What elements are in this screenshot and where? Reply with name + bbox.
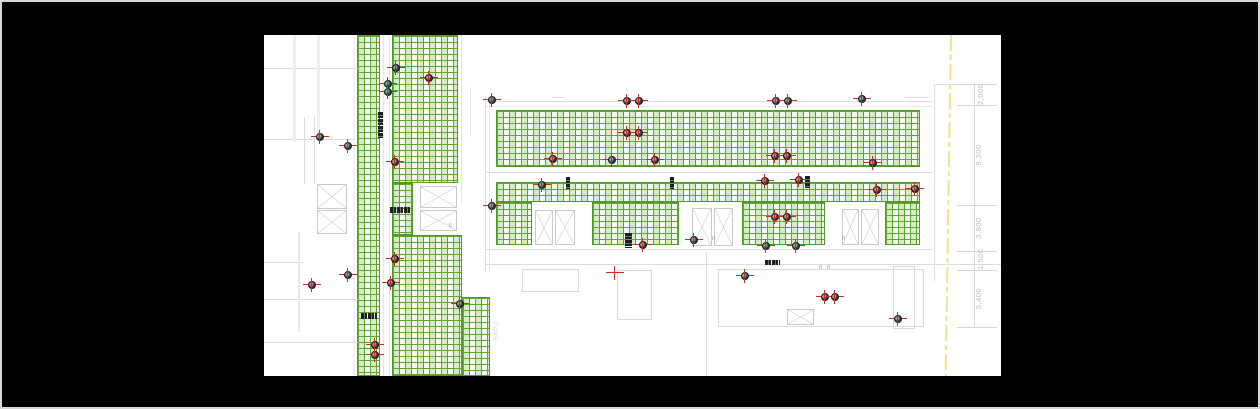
planting-grid-area xyxy=(885,202,920,245)
marker-dot xyxy=(911,185,919,193)
sprinkler-marker xyxy=(630,92,648,110)
marker-dot xyxy=(783,213,791,221)
wall-line xyxy=(485,172,932,173)
annotation-glyph: c xyxy=(449,223,452,229)
marker-dot xyxy=(391,255,399,263)
skylight-xbox xyxy=(787,309,814,325)
sprinkler-marker xyxy=(864,154,882,172)
sprinkler-marker xyxy=(606,264,624,282)
wall-line xyxy=(934,84,935,281)
dimension-label: 1,500 xyxy=(976,251,985,270)
building-outline xyxy=(522,269,579,292)
marker-dot xyxy=(538,181,546,189)
marker-dot xyxy=(795,176,803,184)
sprinkler-marker xyxy=(483,91,501,109)
wall-line xyxy=(461,35,462,202)
marker-dot xyxy=(344,271,352,279)
planting-grid-area xyxy=(357,35,380,376)
sprinkler-marker xyxy=(787,237,805,255)
sprinkler-marker xyxy=(339,266,357,284)
text-tag xyxy=(625,233,632,248)
wall-line xyxy=(706,252,707,376)
sprinkler-marker xyxy=(634,236,652,254)
sprinkler-marker xyxy=(603,151,621,169)
sprinkler-marker xyxy=(826,288,844,306)
skylight-xbox xyxy=(317,184,347,209)
annotation-glyph: n xyxy=(827,265,830,271)
sprinkler-marker xyxy=(379,83,397,101)
marker-dot xyxy=(549,155,557,163)
marker-dot xyxy=(608,156,616,164)
sprinkler-marker xyxy=(756,172,774,190)
wall-line xyxy=(298,232,300,332)
drawing-canvas[interactable]: cnnnn2,0009,3003,8001,5005,400EXP.J xyxy=(264,35,1001,376)
skylight-xbox xyxy=(535,210,553,245)
sprinkler-marker xyxy=(778,147,796,165)
wall-line xyxy=(293,35,296,142)
marker-dot xyxy=(392,64,400,72)
sprinkler-marker xyxy=(533,176,551,194)
marker-dot xyxy=(869,159,877,167)
wall-line xyxy=(470,87,471,137)
wall-line xyxy=(552,97,564,98)
sprinkler-marker xyxy=(386,153,404,171)
sprinkler-marker xyxy=(906,180,924,198)
sprinkler-marker xyxy=(630,124,648,142)
marker-dot xyxy=(456,300,464,308)
marker-dot xyxy=(391,158,399,166)
marker-dot xyxy=(858,95,866,103)
annotation-glyph: n xyxy=(819,265,822,271)
site-boundary-line xyxy=(945,35,952,376)
marker-dot xyxy=(387,279,395,287)
marker-dot xyxy=(635,97,643,105)
marker-dot xyxy=(783,152,791,160)
sprinkler-marker xyxy=(685,231,703,249)
planting-grid-area xyxy=(496,182,920,202)
marker-dot xyxy=(488,96,496,104)
marker-dot xyxy=(690,236,698,244)
marker-dot xyxy=(384,88,392,96)
marker-dot xyxy=(873,186,881,194)
sprinkler-marker xyxy=(736,267,754,285)
sprinkler-marker xyxy=(420,69,438,87)
sprinkler-marker xyxy=(451,295,469,313)
wall-line xyxy=(264,342,358,343)
marker-dot xyxy=(425,74,433,82)
wall-line xyxy=(354,35,355,376)
sprinkler-marker xyxy=(778,208,796,226)
wall-line xyxy=(264,299,358,300)
wall-line xyxy=(905,97,929,98)
skylight-xbox xyxy=(861,209,879,245)
sprinkler-marker xyxy=(889,310,907,328)
sprinkler-marker xyxy=(311,128,329,146)
expansion-joint-label: EXP.J xyxy=(494,322,501,340)
annotation-glyph: n xyxy=(712,236,715,242)
text-tag xyxy=(390,207,410,213)
wall-line xyxy=(957,327,997,328)
marker-dot xyxy=(639,241,647,249)
dimension-label: 5,400 xyxy=(974,270,983,327)
annotation-glyph: n xyxy=(842,236,845,242)
text-tag xyxy=(670,177,674,189)
dimension-label: 9,300 xyxy=(974,105,983,205)
text-tag xyxy=(361,313,377,319)
skylight-xbox xyxy=(555,210,575,245)
marker-dot xyxy=(761,177,769,185)
marker-dot xyxy=(635,129,643,137)
sprinkler-marker xyxy=(853,90,871,108)
wall-line xyxy=(485,249,932,250)
wall-line xyxy=(317,35,320,142)
sprinkler-marker xyxy=(339,137,357,155)
wall-line xyxy=(489,97,490,272)
wall-line xyxy=(485,97,486,272)
text-tag xyxy=(566,177,570,189)
marker-dot xyxy=(651,156,659,164)
planting-grid-area xyxy=(496,202,532,245)
marker-dot xyxy=(741,272,749,280)
wall-line xyxy=(304,117,305,184)
wall-line xyxy=(485,264,1001,265)
text-tag xyxy=(378,112,383,138)
sprinkler-marker xyxy=(544,150,562,168)
wall-line xyxy=(264,68,358,69)
marker-dot xyxy=(371,351,379,359)
sprinkler-marker xyxy=(366,346,384,364)
cad-viewport-background: cnnnn2,0009,3003,8001,5005,400EXP.J xyxy=(0,0,1260,409)
sprinkler-marker xyxy=(779,92,797,110)
skylight-xbox xyxy=(714,208,733,246)
marker-dot xyxy=(762,242,770,250)
sprinkler-marker xyxy=(382,274,400,292)
marker-dot xyxy=(784,97,792,105)
marker-dot xyxy=(344,142,352,150)
sprinkler-marker xyxy=(303,276,321,294)
sprinkler-marker xyxy=(386,250,404,268)
text-tag xyxy=(805,176,810,188)
marker-dot xyxy=(308,281,316,289)
sprinkler-marker xyxy=(757,237,775,255)
text-tag xyxy=(765,260,780,265)
marker-dot xyxy=(316,133,324,141)
sprinkler-marker xyxy=(868,181,886,199)
dimension-label: 3,800 xyxy=(974,205,983,251)
skylight-xbox xyxy=(420,186,457,208)
marker-dot xyxy=(894,315,902,323)
marker-dot xyxy=(488,202,496,210)
sprinkler-marker xyxy=(646,151,664,169)
sprinkler-marker xyxy=(483,197,501,215)
marker-dot xyxy=(831,293,839,301)
dimension-label: 2,000 xyxy=(976,84,985,105)
marker-dot xyxy=(792,242,800,250)
skylight-xbox xyxy=(317,210,347,234)
